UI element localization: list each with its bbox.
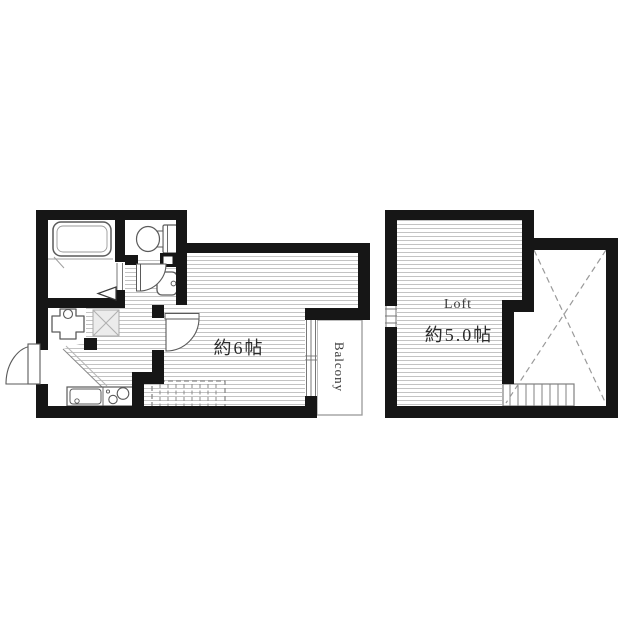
floorplan-page: Balcony [0,0,640,640]
wall-niche [164,257,173,265]
loft-name-label: Loft [444,297,472,312]
loft-window-icon [385,306,397,327]
kitchen-counter [67,387,133,406]
appliance-space-x-icon [93,310,119,336]
first-floor-room-label: 約6帖 [214,338,265,358]
balcony-window-icon [305,320,317,396]
loft-stairs-icon [503,384,574,406]
floorplan-drawing: Balcony [0,0,640,640]
balcony-label: Balcony [332,342,347,392]
loft-area-label: 約5.0帖 [425,325,494,345]
kitchen-sink-icon [70,389,101,404]
balcony-area: Balcony [317,320,362,415]
